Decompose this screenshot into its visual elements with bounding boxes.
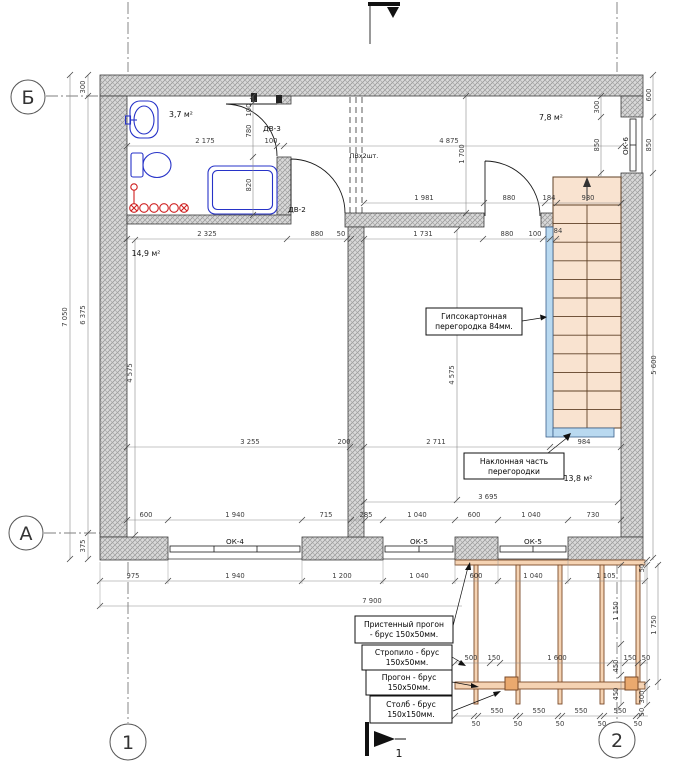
dim-text: 550 bbox=[491, 707, 504, 715]
dim-text: 1 731 bbox=[413, 230, 432, 238]
dim-text: 50 bbox=[642, 654, 651, 662]
wall-bottom-4 bbox=[568, 537, 643, 560]
axis-label-a: А bbox=[20, 523, 33, 545]
wall-bottom-2 bbox=[302, 537, 383, 560]
dim-text: 50 bbox=[472, 720, 481, 728]
dim-text: 150 bbox=[624, 654, 637, 662]
dim-text: 600 bbox=[645, 89, 653, 102]
bath-partition-bottom bbox=[127, 215, 291, 224]
vent-label: ПВх2шт. bbox=[350, 152, 379, 160]
dim-text: 150 bbox=[488, 654, 501, 662]
dim-text: 780 bbox=[245, 125, 253, 138]
dim-text: 1 940 bbox=[225, 511, 244, 519]
dim-text: 450 bbox=[612, 688, 620, 701]
floor-plan-page: 2 175 100 4 875 100 780 820 1 700 1 981 … bbox=[0, 0, 683, 767]
dim-text: 7 050 bbox=[61, 307, 69, 326]
dim-text: 880 bbox=[501, 230, 514, 238]
door-label-dv3: ДВ-3 bbox=[263, 124, 281, 133]
dim-text: 100 bbox=[529, 230, 542, 238]
room-area-top-right: 7,8 м² bbox=[539, 113, 563, 122]
dim-text: 100 bbox=[245, 104, 253, 117]
dim-text: 184 bbox=[543, 194, 556, 202]
interior-wall-horizontal bbox=[345, 213, 484, 227]
dim-text: 2 325 bbox=[197, 230, 216, 238]
axis-label-2: 2 bbox=[611, 730, 623, 752]
dim-text: 1 981 bbox=[414, 194, 433, 202]
wall-bottom-3 bbox=[455, 537, 498, 560]
dim-text: 50 bbox=[337, 230, 346, 238]
wall-bottom-1 bbox=[100, 537, 168, 560]
dim-text: 850 bbox=[593, 139, 601, 152]
dim-text: 1 105 bbox=[596, 572, 615, 580]
dim-text: 1 940 bbox=[225, 572, 244, 580]
dim-text: 200 bbox=[338, 438, 351, 446]
callout-text: Прогон - брус bbox=[382, 673, 437, 682]
axis-label-1: 1 bbox=[122, 732, 134, 754]
room-area-bathroom: 3,7 м² bbox=[169, 110, 193, 119]
dim-text: 1 600 bbox=[547, 654, 566, 662]
callout-text: 150х50мм. bbox=[388, 683, 431, 692]
window-label-ok5b: ОК-5 bbox=[524, 537, 542, 546]
dim-text: 285 bbox=[360, 511, 373, 519]
dim-text: 2 175 bbox=[195, 137, 214, 145]
dim-text: 1 040 bbox=[523, 572, 542, 580]
room-area-right: 13,8 м² bbox=[564, 474, 593, 483]
dim-text: 7 900 bbox=[362, 597, 381, 605]
dim-text: 450 bbox=[612, 660, 620, 673]
dim-text: 3 695 bbox=[478, 493, 497, 501]
dim-text: 984 bbox=[578, 438, 591, 446]
callout-text: Пристенный прогон bbox=[364, 620, 444, 629]
dim-text: 600 bbox=[468, 511, 481, 519]
door-lintel-mark-right bbox=[276, 95, 282, 103]
callout-text: - брус 150х50мм. bbox=[370, 630, 438, 639]
dim-text: 375 bbox=[79, 540, 87, 553]
dim-text: 550 bbox=[575, 707, 588, 715]
dim-text: 300 bbox=[593, 101, 601, 114]
dim-text: 6 375 bbox=[79, 305, 87, 324]
dim-text: 715 bbox=[320, 511, 333, 519]
dim-text: 4 575 bbox=[448, 365, 456, 384]
dim-text: 50 bbox=[634, 720, 643, 728]
dim-text: 980 bbox=[582, 194, 595, 202]
door-label-dv2: ДВ-2 bbox=[288, 205, 306, 214]
dim-text: 300 bbox=[638, 691, 646, 704]
callout-text: перегородка 84мм. bbox=[435, 322, 513, 331]
dim-text: 1 040 bbox=[521, 511, 540, 519]
callout-text: Столб - брус bbox=[386, 700, 436, 709]
dim-text: 550 bbox=[533, 707, 546, 715]
dim-text: 84 bbox=[554, 227, 563, 235]
callout-text: Гипсокартонная bbox=[441, 312, 507, 321]
post bbox=[505, 677, 518, 690]
wall-top bbox=[100, 75, 643, 96]
dim-text: 50 bbox=[638, 708, 646, 717]
dim-text: 50 bbox=[638, 564, 646, 573]
dim-text: 1 700 bbox=[458, 144, 466, 163]
callout-text: перегородки bbox=[488, 467, 540, 476]
callout-text: Стропило - брус bbox=[375, 648, 439, 657]
dim-text: 50 bbox=[556, 720, 565, 728]
section-number: 1 bbox=[396, 747, 403, 760]
wall-girder-beam bbox=[455, 560, 645, 565]
dim-text: 600 bbox=[140, 511, 153, 519]
dim-text: 550 bbox=[614, 707, 627, 715]
window-label-ok4: ОК-4 bbox=[226, 537, 244, 546]
dim-text: 100 bbox=[265, 137, 278, 145]
callout-text: Наклонная часть bbox=[480, 457, 549, 466]
wall-right-upper bbox=[621, 96, 643, 117]
axis-label-b: Б bbox=[21, 87, 34, 109]
dim-text: 1 040 bbox=[407, 511, 426, 519]
callout-text: 150х50мм. bbox=[386, 658, 429, 667]
callout-rafter: Стропило - брус 150х50мм. bbox=[362, 645, 466, 670]
dim-text: 600 bbox=[470, 572, 483, 580]
interior-wall-vertical bbox=[348, 227, 364, 537]
post bbox=[625, 677, 638, 690]
wall-left bbox=[100, 96, 127, 537]
floor-plan-drawing: 2 175 100 4 875 100 780 820 1 700 1 981 … bbox=[0, 0, 683, 767]
dim-text: 1 200 bbox=[332, 572, 351, 580]
dim-text: 500 bbox=[465, 654, 478, 662]
dim-text: 880 bbox=[503, 194, 516, 202]
window-label-ok6: ОК-6 bbox=[621, 137, 630, 155]
dim-text: 5 600 bbox=[650, 355, 658, 374]
dim-text: 1 750 bbox=[650, 615, 658, 634]
room-area-living: 14,9 м² bbox=[132, 249, 161, 258]
callout-text: 150х150мм. bbox=[387, 710, 434, 719]
dim-text: 4 875 bbox=[439, 137, 458, 145]
wall-right-lower bbox=[621, 173, 643, 537]
dim-text: 730 bbox=[587, 511, 600, 519]
dim-text: 880 bbox=[311, 230, 324, 238]
dim-text: 850 bbox=[645, 139, 653, 152]
dim-text: 50 bbox=[514, 720, 523, 728]
stairs bbox=[553, 177, 621, 428]
dim-text: 2 711 bbox=[426, 438, 445, 446]
dim-text: 4 575 bbox=[126, 363, 134, 382]
dim-text: 1 040 bbox=[409, 572, 428, 580]
dim-text: 1 150 bbox=[612, 601, 620, 620]
dim-text: 3 255 bbox=[240, 438, 259, 446]
dim-text: 975 bbox=[127, 572, 140, 580]
dim-text: 300 bbox=[79, 81, 87, 94]
window-label-ok5a: ОК-5 bbox=[410, 537, 428, 546]
dim-text: 820 bbox=[245, 179, 253, 192]
